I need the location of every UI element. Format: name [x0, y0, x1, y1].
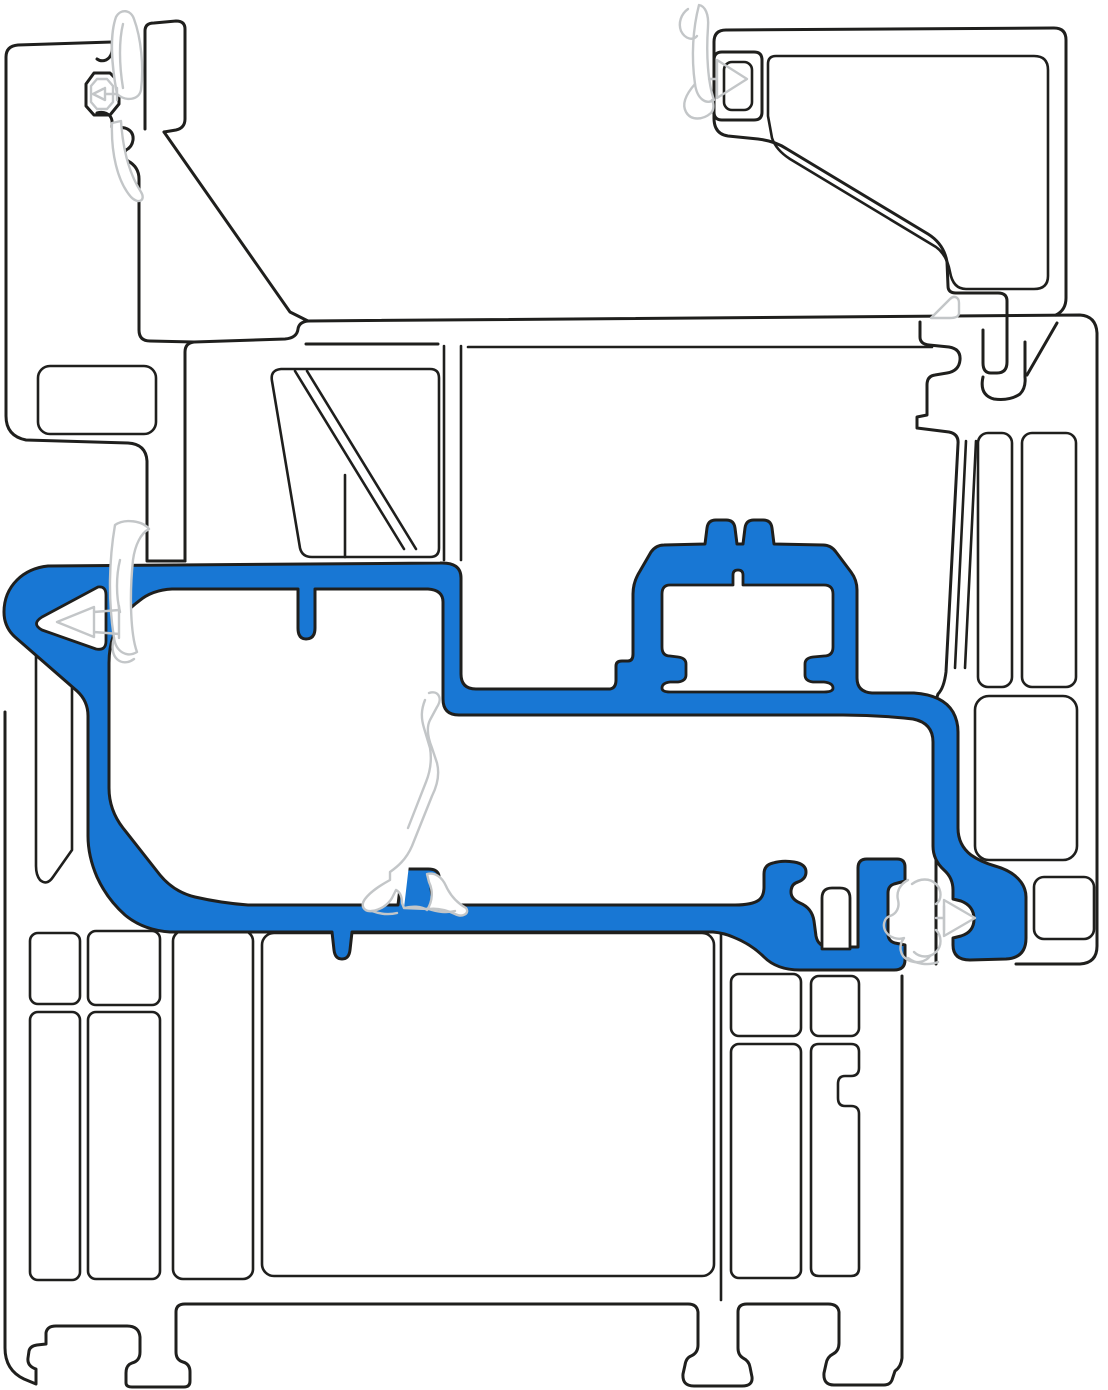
mullion-chamber-notched [811, 1044, 859, 1276]
diagonal-strut-b [307, 371, 416, 549]
gasket-flag [112, 11, 142, 99]
gaskets [57, 5, 975, 964]
mullion-tongue-pocket [822, 888, 850, 949]
thin-diagonal-chamber-b [965, 441, 976, 668]
mullion-chamber-1 [731, 974, 801, 1036]
outer-frame-left [6, 21, 308, 561]
sill-outer-and-feet [5, 712, 902, 1387]
sill-bottom [5, 641, 902, 1387]
sash-inner-chamber [768, 56, 1048, 289]
frame-right-chamber-2 [1022, 433, 1076, 687]
frame-left-leg-right-edge [185, 321, 308, 561]
frame-rain-lip [145, 21, 185, 132]
pocket-upper-hook [97, 42, 112, 61]
sill-chamber-5 [173, 931, 253, 1279]
diagram-canvas [0, 0, 1108, 1390]
diagonal-strut-a [295, 371, 404, 549]
mullion-bottom-right [721, 934, 859, 1300]
gasket-wedge [931, 297, 959, 318]
sill-chamber-main [262, 933, 714, 1276]
frame-right-chamber-1 [978, 433, 1012, 687]
sill-chamber-3 [30, 1012, 80, 1280]
highlight-profile-body [4, 520, 1026, 970]
trapezoid-chamber [272, 369, 439, 557]
sash-top-right [714, 28, 1066, 399]
mullion-chamber-3 [731, 1044, 801, 1278]
frame-left-outer-edge [6, 42, 147, 560]
frame-right-chamber-3 [975, 696, 1077, 860]
highlight-profile [4, 520, 1026, 970]
sash-lower-edge-and-hook [714, 118, 1007, 373]
frame-sloped-face [164, 132, 308, 321]
mullion-chamber-2 [811, 976, 859, 1036]
frame-interlock-diagonal [1027, 323, 1057, 375]
sill-chamber-2 [88, 931, 160, 1005]
frame-right-chamber-4 [1034, 877, 1094, 939]
frame-left-chamber [38, 366, 156, 434]
profile-cross-section-svg [0, 0, 1108, 1390]
gasket-tail [112, 121, 143, 201]
gasket-tr-flag [693, 5, 714, 102]
sill-chamber-1 [30, 933, 80, 1004]
sill-chamber-4 [88, 1012, 160, 1279]
